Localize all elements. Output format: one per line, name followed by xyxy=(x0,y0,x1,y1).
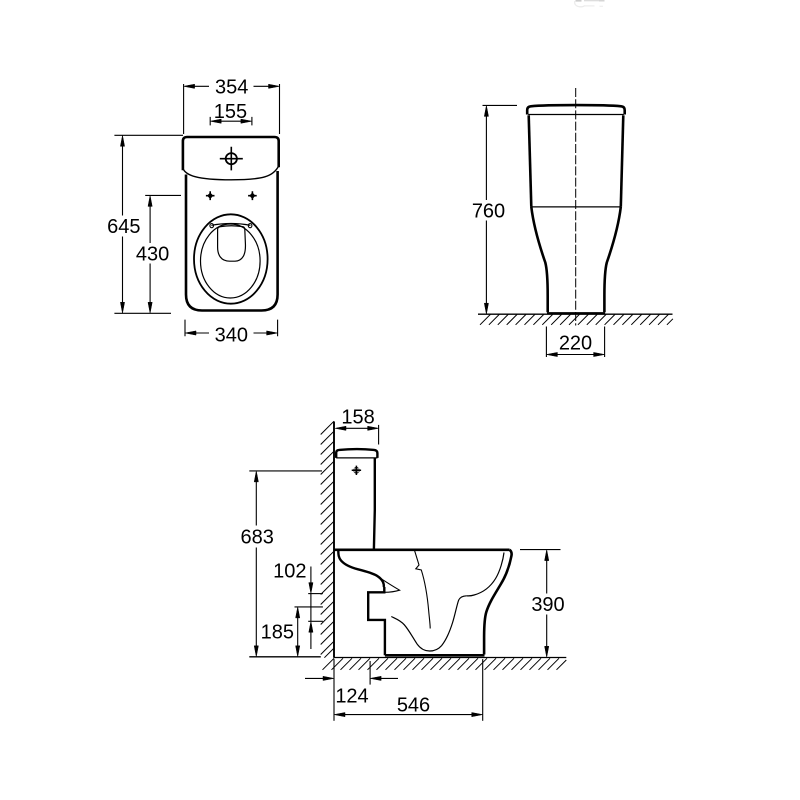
svg-text:760: 760 xyxy=(472,200,505,222)
svg-text:645: 645 xyxy=(107,216,140,238)
svg-text:102: 102 xyxy=(273,560,306,582)
svg-text:354: 354 xyxy=(215,76,248,98)
svg-text:390: 390 xyxy=(531,594,564,616)
svg-text:683: 683 xyxy=(241,527,274,549)
svg-text:158: 158 xyxy=(341,406,374,428)
svg-text:340: 340 xyxy=(215,325,248,347)
svg-text:155: 155 xyxy=(214,101,247,123)
svg-text:546: 546 xyxy=(397,695,430,717)
svg-text:430: 430 xyxy=(136,243,169,265)
svg-text:185: 185 xyxy=(261,622,294,644)
svg-text:124: 124 xyxy=(335,685,368,707)
svg-text:220: 220 xyxy=(559,333,592,355)
